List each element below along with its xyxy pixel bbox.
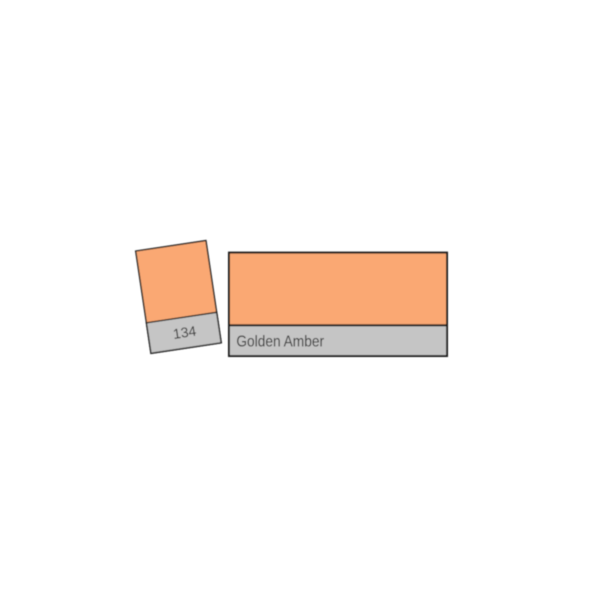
svg-text:Golden Amber: Golden Amber (236, 334, 324, 351)
svg-text:134: 134 (172, 323, 198, 342)
